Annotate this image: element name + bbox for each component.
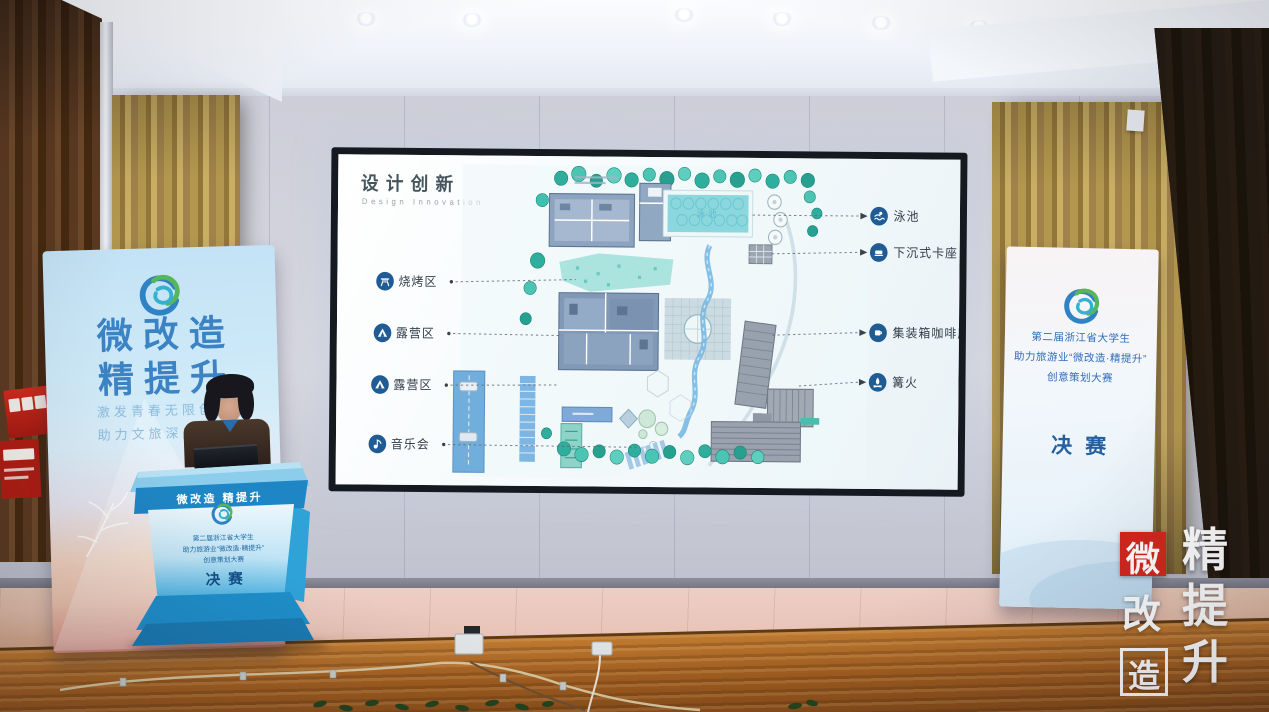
plan-boardwalk [519,376,535,462]
banner-line2: 助力旅游业“微改造·精提升” [1004,348,1156,366]
watermark-char: 精 [1182,522,1262,578]
svg-text:篝火: 篝火 [892,374,918,390]
fire-extinguisher-box [0,439,41,499]
junction-boxes [455,626,612,655]
cable-clips [120,670,566,690]
plan-pool: 泳池 [663,190,753,237]
banner-line1: 第二届浙江省大学生 [1005,328,1157,346]
cable-lines [60,655,700,712]
svg-text:露营区: 露营区 [396,326,435,341]
watermark-char: 微 [1120,532,1166,576]
svg-text:集装箱咖啡厅: 集装箱咖啡厅 [893,325,961,341]
watermark-col-left: 微 改 造 [1118,528,1174,696]
plan-plaza [664,298,731,360]
podium-final-label: 决赛 [206,569,251,588]
watermark-char: 改 [1122,584,1174,640]
event-stage-photo: 设计创新 Design Innovation [0,0,1269,712]
plan-label-camp1: 露营区 [374,323,435,342]
plan-label-concert: 音乐会 [368,435,429,454]
led-screen: 设计创新 Design Innovation [329,147,968,497]
plant-leaves [312,699,818,712]
watermark-char: 造 [1120,648,1168,696]
ceiling-light [462,13,482,27]
plan-building-main [558,293,658,371]
pool-inline-label: 泳池 [697,208,720,220]
banner-line3: 创意策划大赛 [1004,368,1156,386]
watermark-char: 升 [1182,634,1262,690]
watermark-col-right: 精 提 升 [1182,522,1262,690]
plan-label-camp2: 露营区 [371,375,432,394]
svg-text:露营区: 露营区 [393,378,432,393]
wall-speaker-box [1126,109,1144,131]
ceiling-light [356,12,376,26]
slide-title: 设计创新 [361,172,461,194]
event-logo [1061,286,1102,327]
plan-label-bbq: 烧烤区 [376,272,437,291]
plan-road [453,371,485,472]
plan-sunken-booth [749,245,772,264]
banner-final-label: 决赛 [1002,428,1155,461]
svg-text:泳池: 泳池 [894,209,920,224]
svg-text:音乐会: 音乐会 [391,436,430,452]
ceiling-light [772,12,792,26]
svg-text:烧烤区: 烧烤区 [398,273,437,289]
plan-label-bonfire: 篝火 [869,373,918,392]
plan-label-cafe: 集装箱咖啡厅 [869,323,960,343]
ceiling-light [871,16,891,30]
podium: 微改造 精提升 第二届浙江省大学生 助力旅游业“微改造·精提升” 创意策划大赛 … [124,452,314,657]
svg-text:下沉式卡座: 下沉式卡座 [893,245,958,261]
watermark: 微 改 造 精 提 升 [1118,528,1268,712]
slide: 设计创新 Design Innovation [336,154,961,489]
site-plan: 泳池 [442,164,869,480]
ceiling-light [674,8,694,22]
plan-label-pool: 泳池 [870,207,919,226]
watermark-char: 提 [1182,578,1262,634]
plan-label-booth: 下沉式卡座 [870,243,958,262]
